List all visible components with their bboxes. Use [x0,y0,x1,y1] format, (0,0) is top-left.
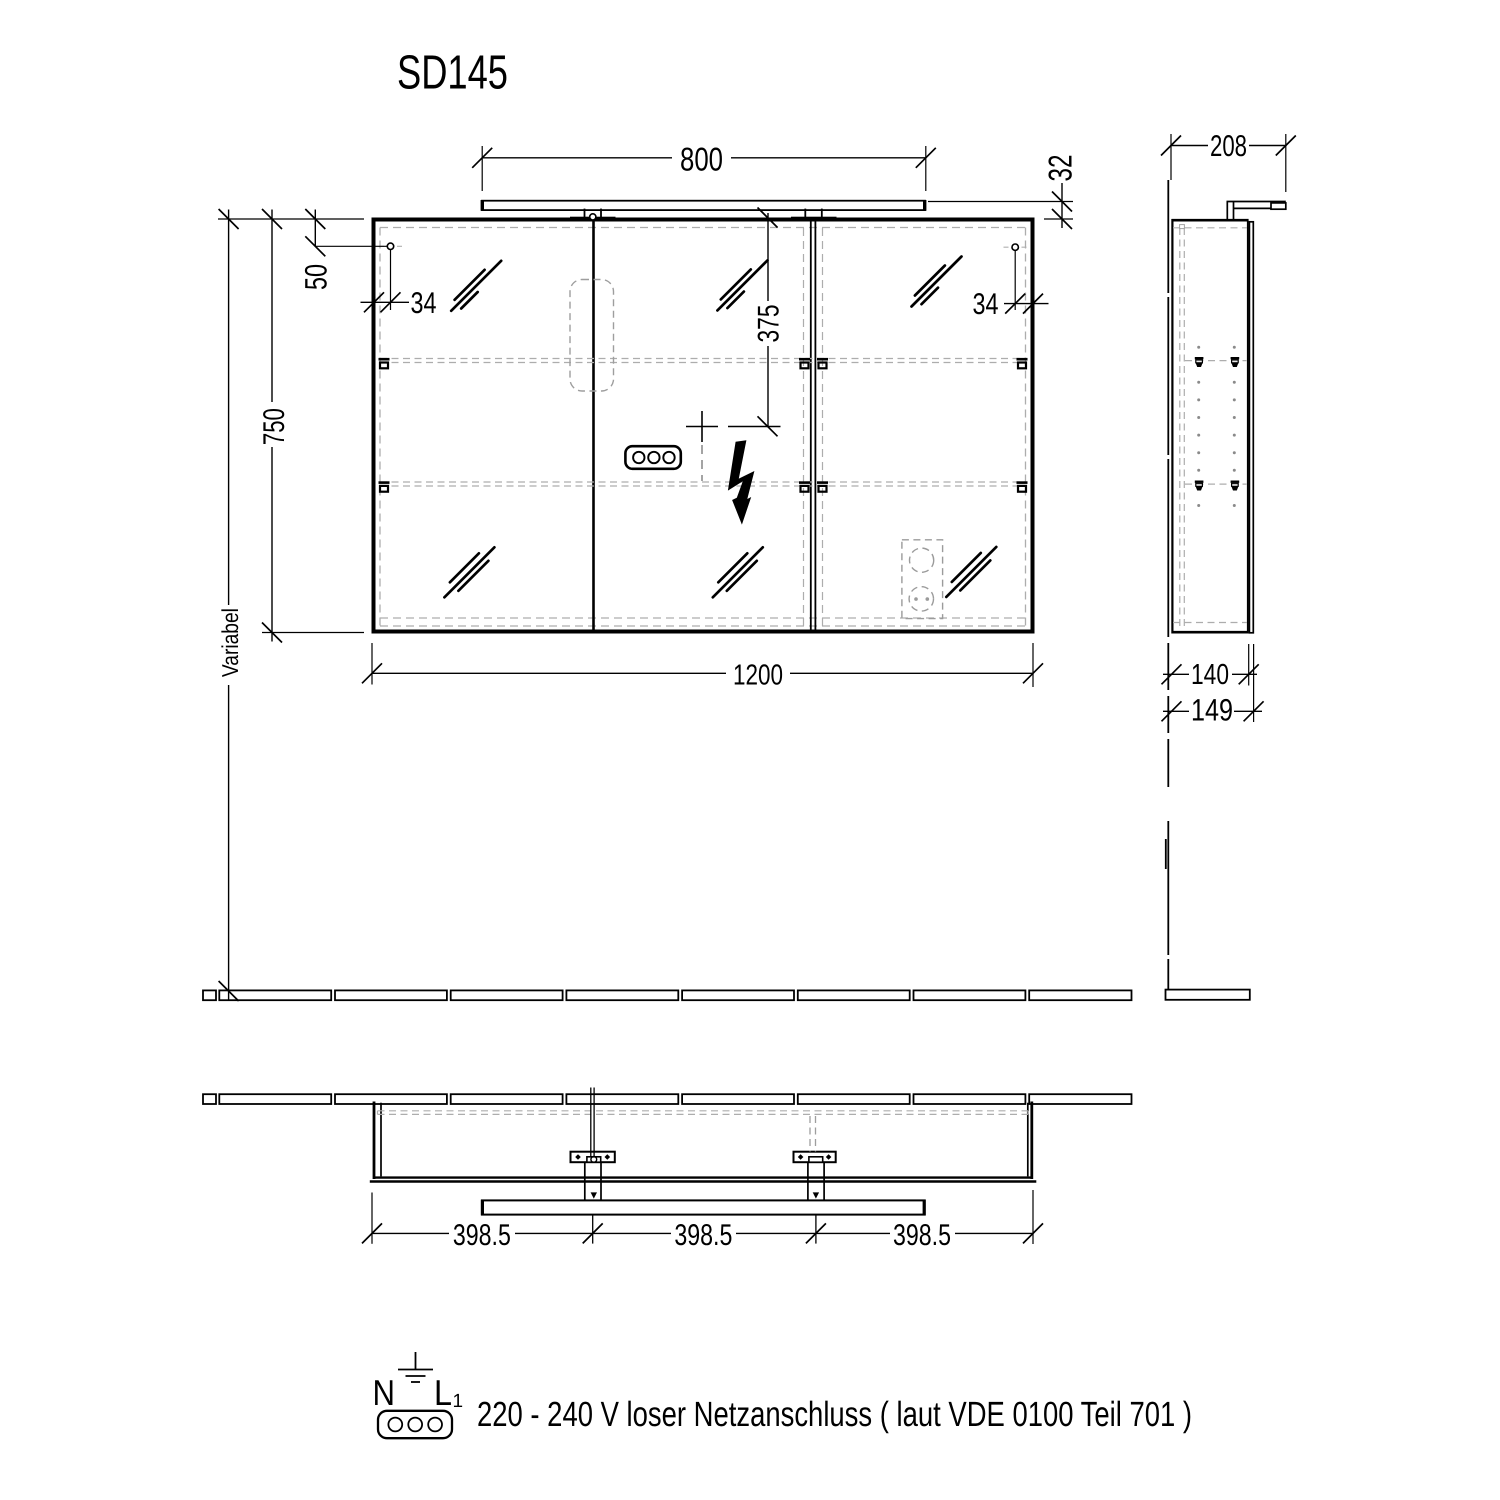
svg-text:32: 32 [1042,155,1079,182]
svg-text:220 - 240 V loser Netzanschlus: 220 - 240 V loser Netzanschluss ( laut V… [477,1395,1192,1434]
svg-text:398.5: 398.5 [453,1219,511,1252]
svg-text:1: 1 [453,1391,464,1412]
svg-text:750: 750 [258,408,291,445]
svg-text:140: 140 [1191,659,1229,691]
svg-text:375: 375 [753,305,786,343]
svg-text:50: 50 [299,264,334,290]
svg-text:Variabel: Variabel [217,608,243,677]
svg-text:398.5: 398.5 [893,1219,951,1252]
svg-text:34: 34 [411,287,437,320]
svg-text:149: 149 [1191,693,1233,728]
svg-text:208: 208 [1210,130,1247,163]
svg-text:800: 800 [680,141,723,178]
svg-text:1200: 1200 [733,660,783,692]
svg-text:L: L [434,1372,452,1413]
svg-text:N: N [373,1372,396,1413]
svg-text:34: 34 [973,288,999,321]
svg-text:398.5: 398.5 [674,1219,732,1252]
svg-text:SD145: SD145 [397,47,508,100]
